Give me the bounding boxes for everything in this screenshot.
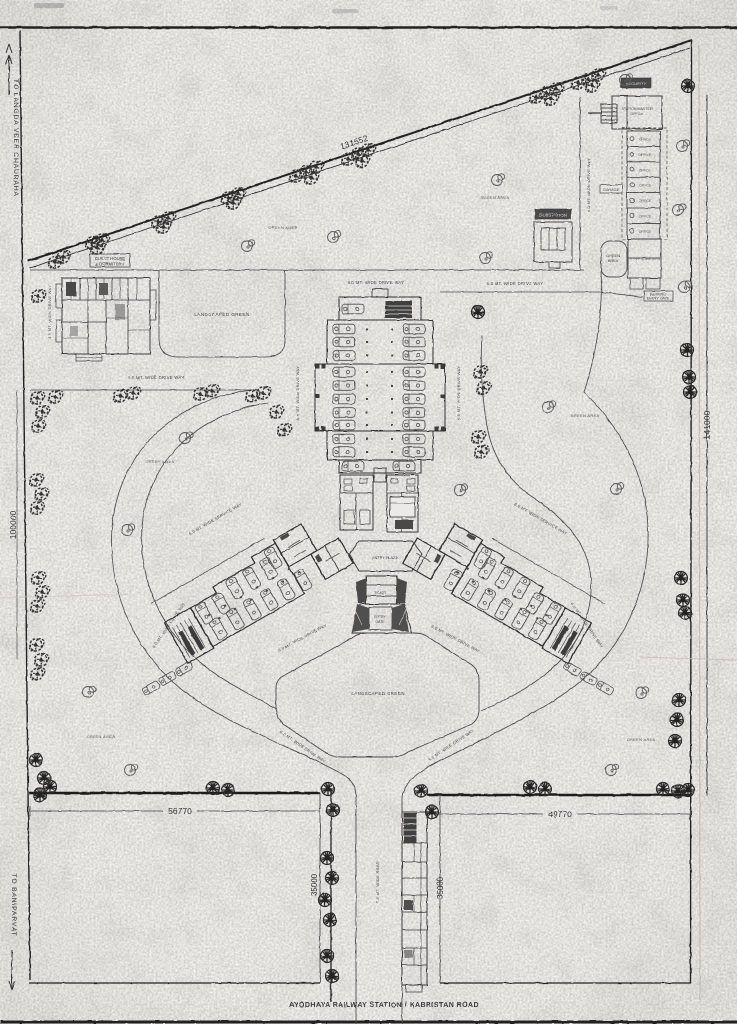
svg-text:GREEN AREA: GREEN AREA	[480, 195, 509, 200]
svg-text:GREEN AREA: GREEN AREA	[626, 737, 655, 742]
svg-text:GREEN AREA: GREEN AREA	[570, 413, 599, 418]
svg-text:GREEN AREA: GREEN AREA	[86, 734, 115, 739]
svg-text:GREEN AREA: GREEN AREA	[268, 225, 297, 230]
svg-text:GREEN AREA: GREEN AREA	[145, 459, 174, 464]
